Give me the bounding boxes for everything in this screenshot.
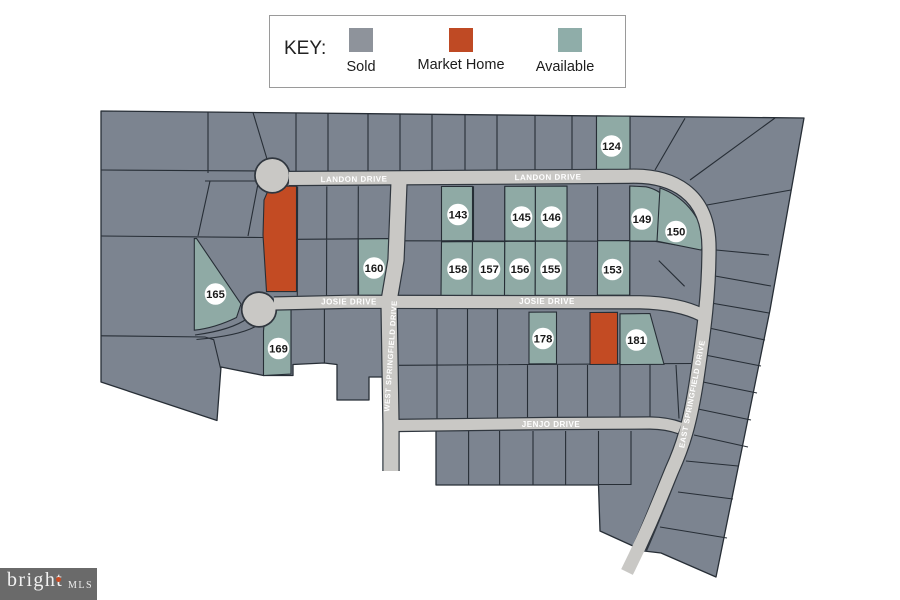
svg-text:178: 178 xyxy=(534,334,553,346)
svg-text:165: 165 xyxy=(206,289,225,301)
svg-text:JOSIE DRIVE: JOSIE DRIVE xyxy=(321,298,377,307)
svg-text:145: 145 xyxy=(512,212,531,224)
svg-text:143: 143 xyxy=(449,210,468,222)
svg-text:124: 124 xyxy=(602,141,621,153)
svg-text:181: 181 xyxy=(627,335,646,347)
svg-text:JOSIE DRIVE: JOSIE DRIVE xyxy=(519,297,575,306)
svg-text:156: 156 xyxy=(511,264,530,276)
svg-text:153: 153 xyxy=(603,265,622,277)
svg-text:150: 150 xyxy=(667,227,686,239)
svg-text:LANDON DRIVE: LANDON DRIVE xyxy=(321,174,388,184)
svg-text:155: 155 xyxy=(542,264,561,276)
svg-text:LANDON DRIVE: LANDON DRIVE xyxy=(515,172,582,182)
svg-text:146: 146 xyxy=(542,212,561,224)
svg-text:169: 169 xyxy=(269,344,288,356)
svg-text:157: 157 xyxy=(480,264,499,276)
svg-text:JENJO DRIVE: JENJO DRIVE xyxy=(522,420,581,429)
svg-text:158: 158 xyxy=(449,264,468,276)
svg-text:149: 149 xyxy=(633,214,652,226)
svg-text:160: 160 xyxy=(365,263,384,275)
